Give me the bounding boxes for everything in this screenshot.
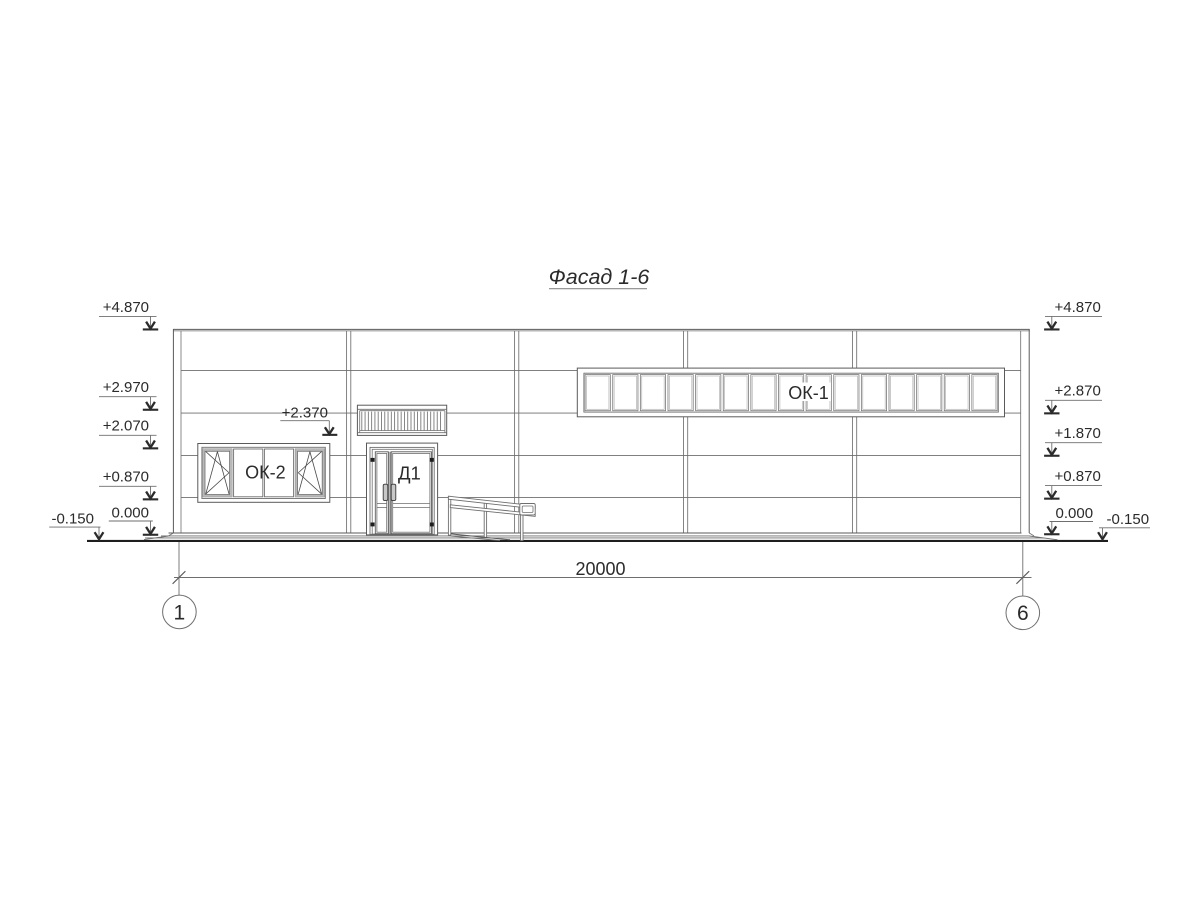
svg-text:ОК-2: ОК-2 [245,463,286,483]
svg-text:+2.070: +2.070 [103,418,149,435]
svg-text:-0.150: -0.150 [1107,511,1150,528]
svg-text:+2.370: +2.370 [282,404,328,421]
svg-text:+0.870: +0.870 [103,469,149,486]
svg-text:+2.870: +2.870 [1055,383,1101,400]
svg-text:0.000: 0.000 [111,504,149,521]
svg-text:1: 1 [174,601,186,624]
svg-text:+0.870: +0.870 [1055,468,1101,485]
svg-text:+2.970: +2.970 [103,379,149,396]
svg-text:ОК-1: ОК-1 [788,383,829,403]
svg-text:0.000: 0.000 [1056,505,1094,522]
svg-text:20000: 20000 [575,559,625,579]
svg-text:Фасад 1-6: Фасад 1-6 [549,265,650,289]
svg-text:Д1: Д1 [398,462,421,483]
svg-text:6: 6 [1017,602,1029,625]
svg-text:+4.870: +4.870 [103,299,149,316]
svg-text:+4.870: +4.870 [1055,299,1101,316]
svg-text:-0.150: -0.150 [51,511,94,528]
svg-text:+1.870: +1.870 [1055,425,1101,442]
